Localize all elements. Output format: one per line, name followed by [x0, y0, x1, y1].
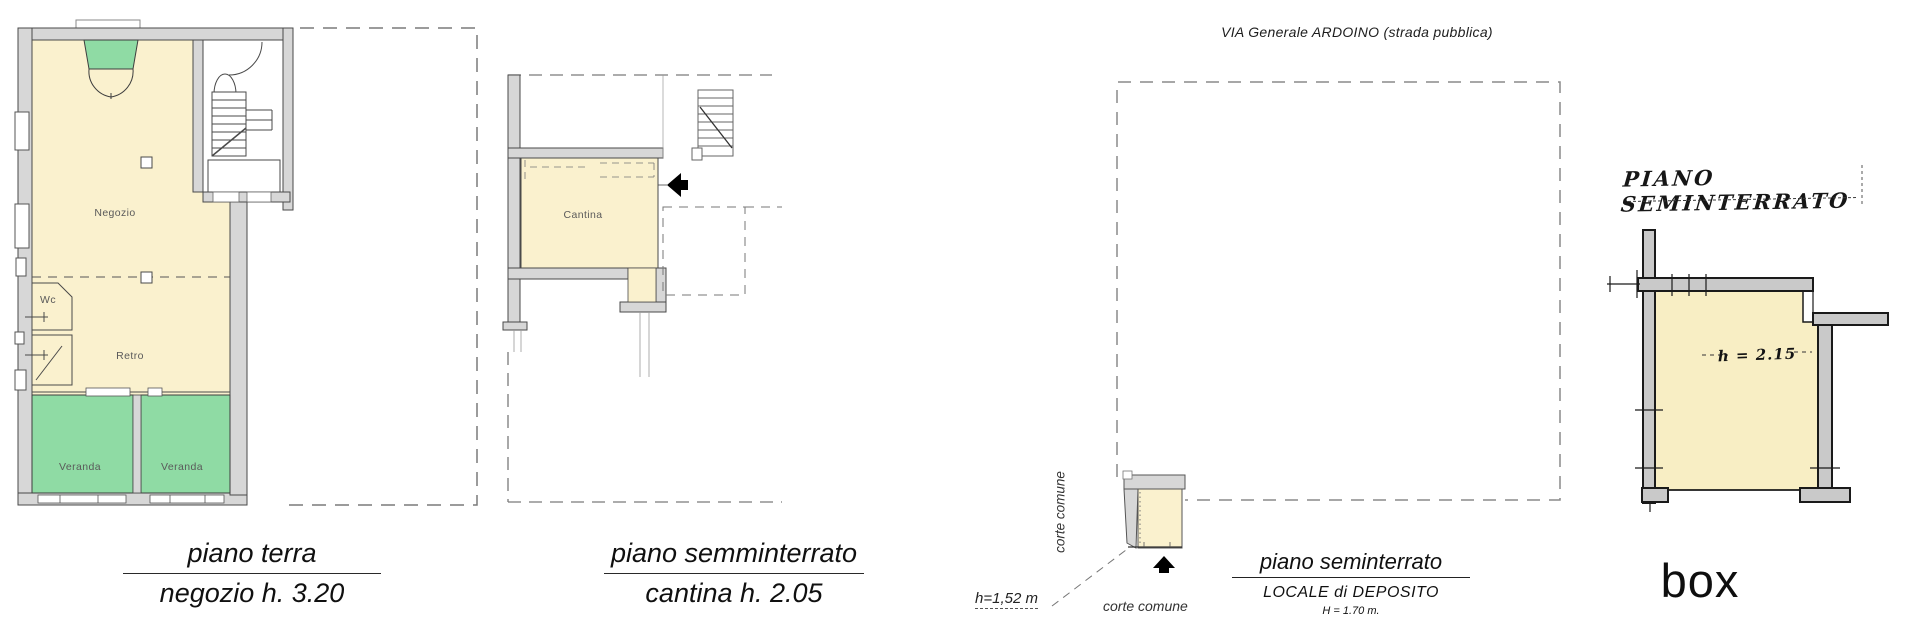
entrance-arrow-icon: [667, 173, 688, 197]
veranda-right-room-label: Veranda: [161, 461, 203, 473]
entrance-arrow-icon: [1153, 556, 1175, 573]
height-215-label: h = 2.15: [1717, 345, 1796, 366]
corte-comune-left-label: corte comune: [1053, 471, 1068, 553]
entrance-vestibule: [84, 40, 138, 69]
courtyard-dashed-boundary: [283, 28, 477, 505]
stairs-icon: [692, 90, 733, 160]
wc-room-label: Wc: [40, 294, 56, 306]
deposito-floorplan-drawing: [940, 10, 1580, 630]
caption-rule: [123, 573, 381, 574]
lot-dashed-boundary: [1117, 82, 1560, 500]
cantina-room-label: Cantina: [564, 209, 603, 221]
caption-rule: [1232, 577, 1470, 578]
door-swing-icon: [229, 42, 262, 75]
piano-terra-caption-subtitle: negozio h. 3.20: [123, 578, 381, 608]
height-152-label: h=1,52 m: [975, 590, 1038, 609]
corte-comune-bottom-label: corte comune: [1103, 598, 1188, 614]
floorplan-sheet: Negozio Wc Retro Veranda Veranda Cantina…: [0, 0, 1920, 644]
arched-door-icon: [214, 74, 236, 94]
cantina-floorplan-drawing: [470, 55, 800, 515]
caption-rule: [604, 573, 864, 574]
cantina-caption: piano semminterrato cantina h. 2.05: [604, 538, 864, 608]
cantina-caption-subtitle: cantina h. 2.05: [604, 578, 864, 608]
deposito-caption-note: H = 1.70 m.: [1232, 604, 1470, 618]
deposit-room: [1123, 471, 1185, 548]
street-label: VIA Generale ARDOINO (strada pubblica): [1221, 24, 1493, 40]
box-plan-title: PIANO SEMINTERRATO: [1620, 161, 1920, 216]
piano-terra-caption-title: piano terra: [123, 538, 381, 569]
negozio-room-label: Negozio: [94, 207, 135, 219]
piano-terra-caption: piano terra negozio h. 3.20: [123, 538, 381, 608]
veranda-left-room-label: Veranda: [59, 461, 101, 473]
stairwell: [208, 42, 280, 202]
deposito-caption: piano seminterrato LOCALE di DEPOSITO H …: [1232, 549, 1470, 618]
cantina-caption-title: piano semminterrato: [604, 538, 864, 569]
box-caption: box: [1661, 553, 1740, 608]
retro-room-label: Retro: [116, 350, 144, 362]
stairs-icon: [212, 92, 272, 156]
piano-terra-floorplan-drawing: [0, 0, 490, 520]
deposito-caption-subtitle: LOCALE di DEPOSITO: [1232, 583, 1470, 602]
veranda-rooms: [32, 388, 230, 503]
deposito-caption-title: piano seminterrato: [1232, 549, 1470, 574]
